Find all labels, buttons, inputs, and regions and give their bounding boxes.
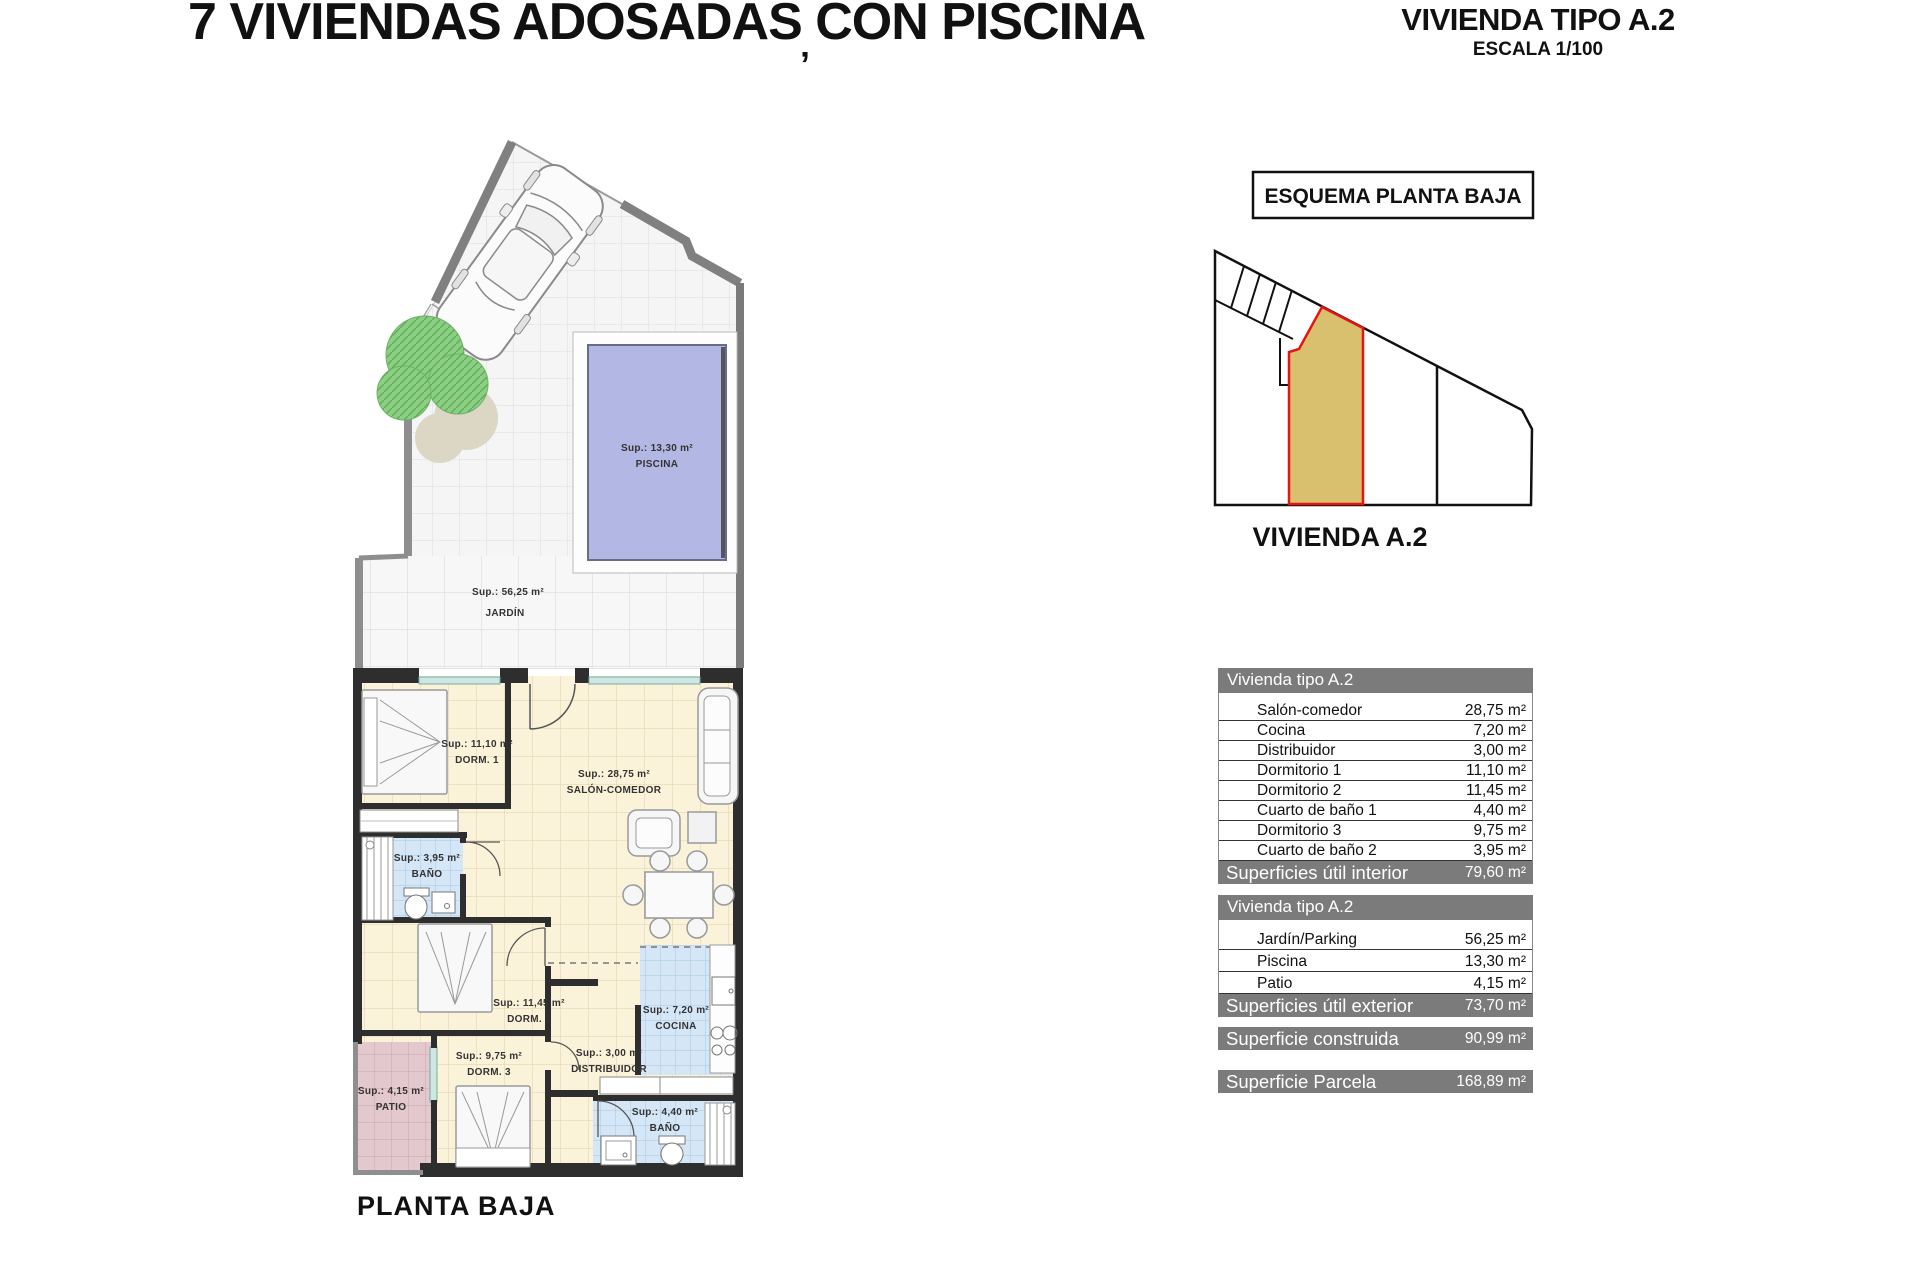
parcel-area-bar: Superficie Parcela 168,89 m² <box>1218 1070 1533 1093</box>
table-row: Jardín/Parking56,25 m² <box>1219 928 1532 950</box>
bed-dorm3 <box>456 1086 530 1167</box>
svg-text:Sup.: 4,40 m²: Sup.: 4,40 m² <box>632 1107 699 1118</box>
sheet-header-right: VIVIENDA TIPO A.2 ESCALA 1/100 <box>1378 2 1698 61</box>
plan-sheet: 7 VIVIENDAS ADOSADAS CON PISCINA ’ VIVIE… <box>0 0 1920 1280</box>
svg-text:DISTRIBUIDOR: DISTRIBUIDOR <box>571 1064 647 1075</box>
schema-title: ESQUEMA PLANTA BAJA <box>1264 185 1521 208</box>
svg-text:BAÑO: BAÑO <box>650 1121 681 1134</box>
svg-text:DORM. 2: DORM. 2 <box>507 1014 551 1025</box>
page-title: 7 VIVIENDAS ADOSADAS CON PISCINA <box>188 0 1145 52</box>
table-row: Patio4,15 m² <box>1219 972 1532 994</box>
svg-text:BAÑO: BAÑO <box>412 867 443 880</box>
table-row: Salón-comedor28,75 m² <box>1219 701 1532 721</box>
bed-dorm1 <box>362 690 447 794</box>
svg-text:Sup.: 4,15 m²: Sup.: 4,15 m² <box>358 1086 425 1097</box>
floor-plan: Sup.: 13,30 m² PISCINA Sup.: 56,25 m² JA… <box>330 110 800 1240</box>
table-row: Dormitorio 211,45 m² <box>1219 781 1532 801</box>
svg-text:Sup.: 9,75 m²: Sup.: 9,75 m² <box>456 1051 523 1062</box>
svg-text:Sup.: 11,45 m²: Sup.: 11,45 m² <box>493 998 565 1009</box>
table-footer: Superficies útil interior 79,60 m² <box>1218 861 1533 884</box>
svg-text:PATIO: PATIO <box>376 1102 407 1113</box>
svg-text:JARDÍN: JARDÍN <box>485 606 524 619</box>
svg-text:Sup.: 3,95 m²: Sup.: 3,95 m² <box>394 853 461 864</box>
bed-dorm2 <box>418 924 492 1012</box>
table-footer: Superficies útil exterior 73,70 m² <box>1218 994 1533 1017</box>
table-row: Dormitorio 111,10 m² <box>1219 761 1532 781</box>
unit-type-title: VIVIENDA TIPO A.2 <box>1378 2 1698 38</box>
svg-text:Sup.: 28,75 m²: Sup.: 28,75 m² <box>578 769 650 780</box>
svg-text:Sup.: 13,30 m²: Sup.: 13,30 m² <box>621 443 693 454</box>
interior-areas-table: Vivienda tipo A.2 Salón-comedor28,75 m² … <box>1218 668 1533 884</box>
kitchen-fixtures <box>710 945 737 1073</box>
table-row: Distribuidor3,00 m² <box>1219 741 1532 761</box>
table-row: Dormitorio 39,75 m² <box>1219 821 1532 841</box>
svg-text:PISCINA: PISCINA <box>636 459 679 470</box>
exterior-areas-table: Vivienda tipo A.2 Jardín/Parking56,25 m²… <box>1218 895 1533 1017</box>
table-header: Vivienda tipo A.2 <box>1218 668 1533 693</box>
table-row: Piscina13,30 m² <box>1219 950 1532 972</box>
sofa <box>698 688 738 804</box>
table-header: Vivienda tipo A.2 <box>1218 895 1533 920</box>
plan-caption: PLANTA BAJA <box>357 1191 556 1221</box>
svg-text:Sup.: 11,10 m²: Sup.: 11,10 m² <box>441 739 513 750</box>
svg-text:DORM. 1: DORM. 1 <box>455 755 499 766</box>
table-row: Cocina7,20 m² <box>1219 721 1532 741</box>
built-area-bar: Superficie construida 90,99 m² <box>1218 1027 1533 1050</box>
closet <box>600 1077 733 1094</box>
stray-mark: ’ <box>800 44 810 86</box>
svg-text:DORM. 3: DORM. 3 <box>467 1067 511 1078</box>
table-row: Cuarto de baño 23,95 m² <box>1219 841 1532 861</box>
schema-unit-label: VIVIENDA A.2 <box>1252 522 1427 552</box>
svg-text:Sup.: 56,25 m²: Sup.: 56,25 m² <box>472 587 544 598</box>
svg-text:Sup.: 7,20 m²: Sup.: 7,20 m² <box>643 1005 710 1016</box>
svg-text:SALÓN-COMEDOR: SALÓN-COMEDOR <box>567 783 662 796</box>
svg-text:Sup.: 3,00 m²: Sup.: 3,00 m² <box>576 1048 643 1059</box>
table-row: Cuarto de baño 14,40 m² <box>1219 801 1532 821</box>
schema-diagram: ESQUEMA PLANTA BAJA VIVIENDA A.2 <box>1180 160 1600 570</box>
scale-label: ESCALA 1/100 <box>1378 39 1698 61</box>
svg-text:COCINA: COCINA <box>655 1021 696 1032</box>
plot-outline <box>1215 251 1532 505</box>
